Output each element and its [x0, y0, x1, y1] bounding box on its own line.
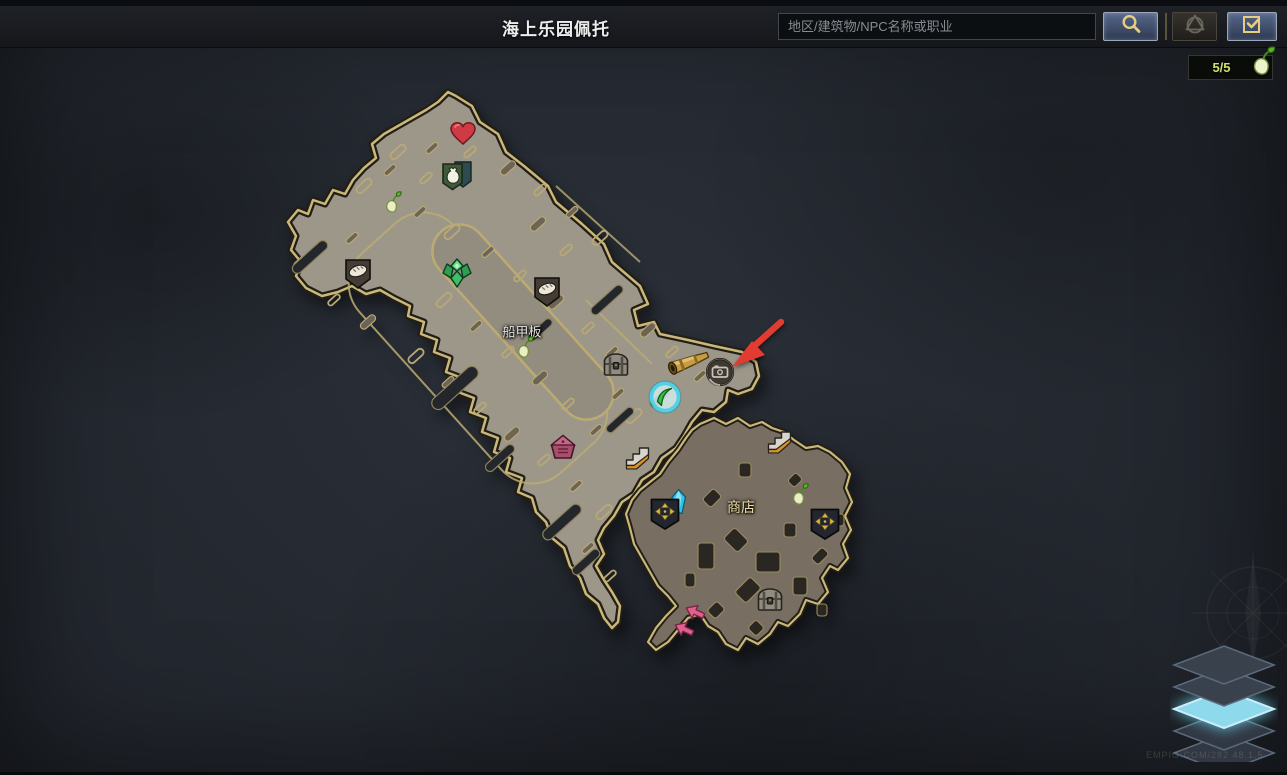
- mokoko-seed-icon: [516, 336, 535, 359]
- map-layers-button[interactable]: [1170, 636, 1278, 762]
- toolbar-divider: [1165, 13, 1167, 40]
- search-input[interactable]: [778, 13, 1096, 40]
- general-merchant-icon[interactable]: [810, 508, 841, 541]
- search-button[interactable]: [1103, 12, 1158, 41]
- general-merchant-icon[interactable]: [650, 498, 681, 531]
- mokoko-seed-icon: [384, 191, 403, 214]
- watermark-text: EMPIG.COM/282 48.1.5: [1146, 750, 1264, 760]
- mokoko-seed-counter: 5/5: [1188, 55, 1273, 80]
- food-vendor-icon[interactable]: [534, 277, 561, 308]
- favorite-heart-icon: [450, 122, 476, 146]
- chest-icon[interactable]: [603, 353, 630, 378]
- pointer-arrow-icon: [721, 318, 787, 376]
- seed-count-value: 5/5: [1212, 60, 1248, 75]
- triport-icon: [1183, 12, 1207, 41]
- checkbox-icon: [1241, 13, 1263, 40]
- stairs-icon[interactable]: [624, 445, 653, 470]
- chest-icon[interactable]: [757, 588, 784, 613]
- magnifier-icon: [1120, 13, 1142, 40]
- page-title: 海上乐园佩托: [502, 15, 610, 40]
- map-canvas[interactable]: [0, 0, 1287, 775]
- triport-button[interactable]: [1172, 12, 1217, 41]
- map-label: 商店: [727, 497, 755, 517]
- stairs-icon[interactable]: [766, 429, 795, 454]
- landmark-house-icon[interactable]: [550, 434, 576, 460]
- filter-checkbox-button[interactable]: [1227, 12, 1277, 41]
- mokoko-seed-icon: [1250, 46, 1276, 81]
- green-crystal-icon[interactable]: [440, 257, 474, 289]
- food-vendor-icon[interactable]: [345, 259, 372, 290]
- supply-chest-icon[interactable]: [440, 158, 474, 192]
- top-bar: 海上乐园佩托: [0, 0, 1287, 48]
- mokoko-seed-icon: [791, 483, 810, 506]
- player-position-marker: [645, 377, 685, 417]
